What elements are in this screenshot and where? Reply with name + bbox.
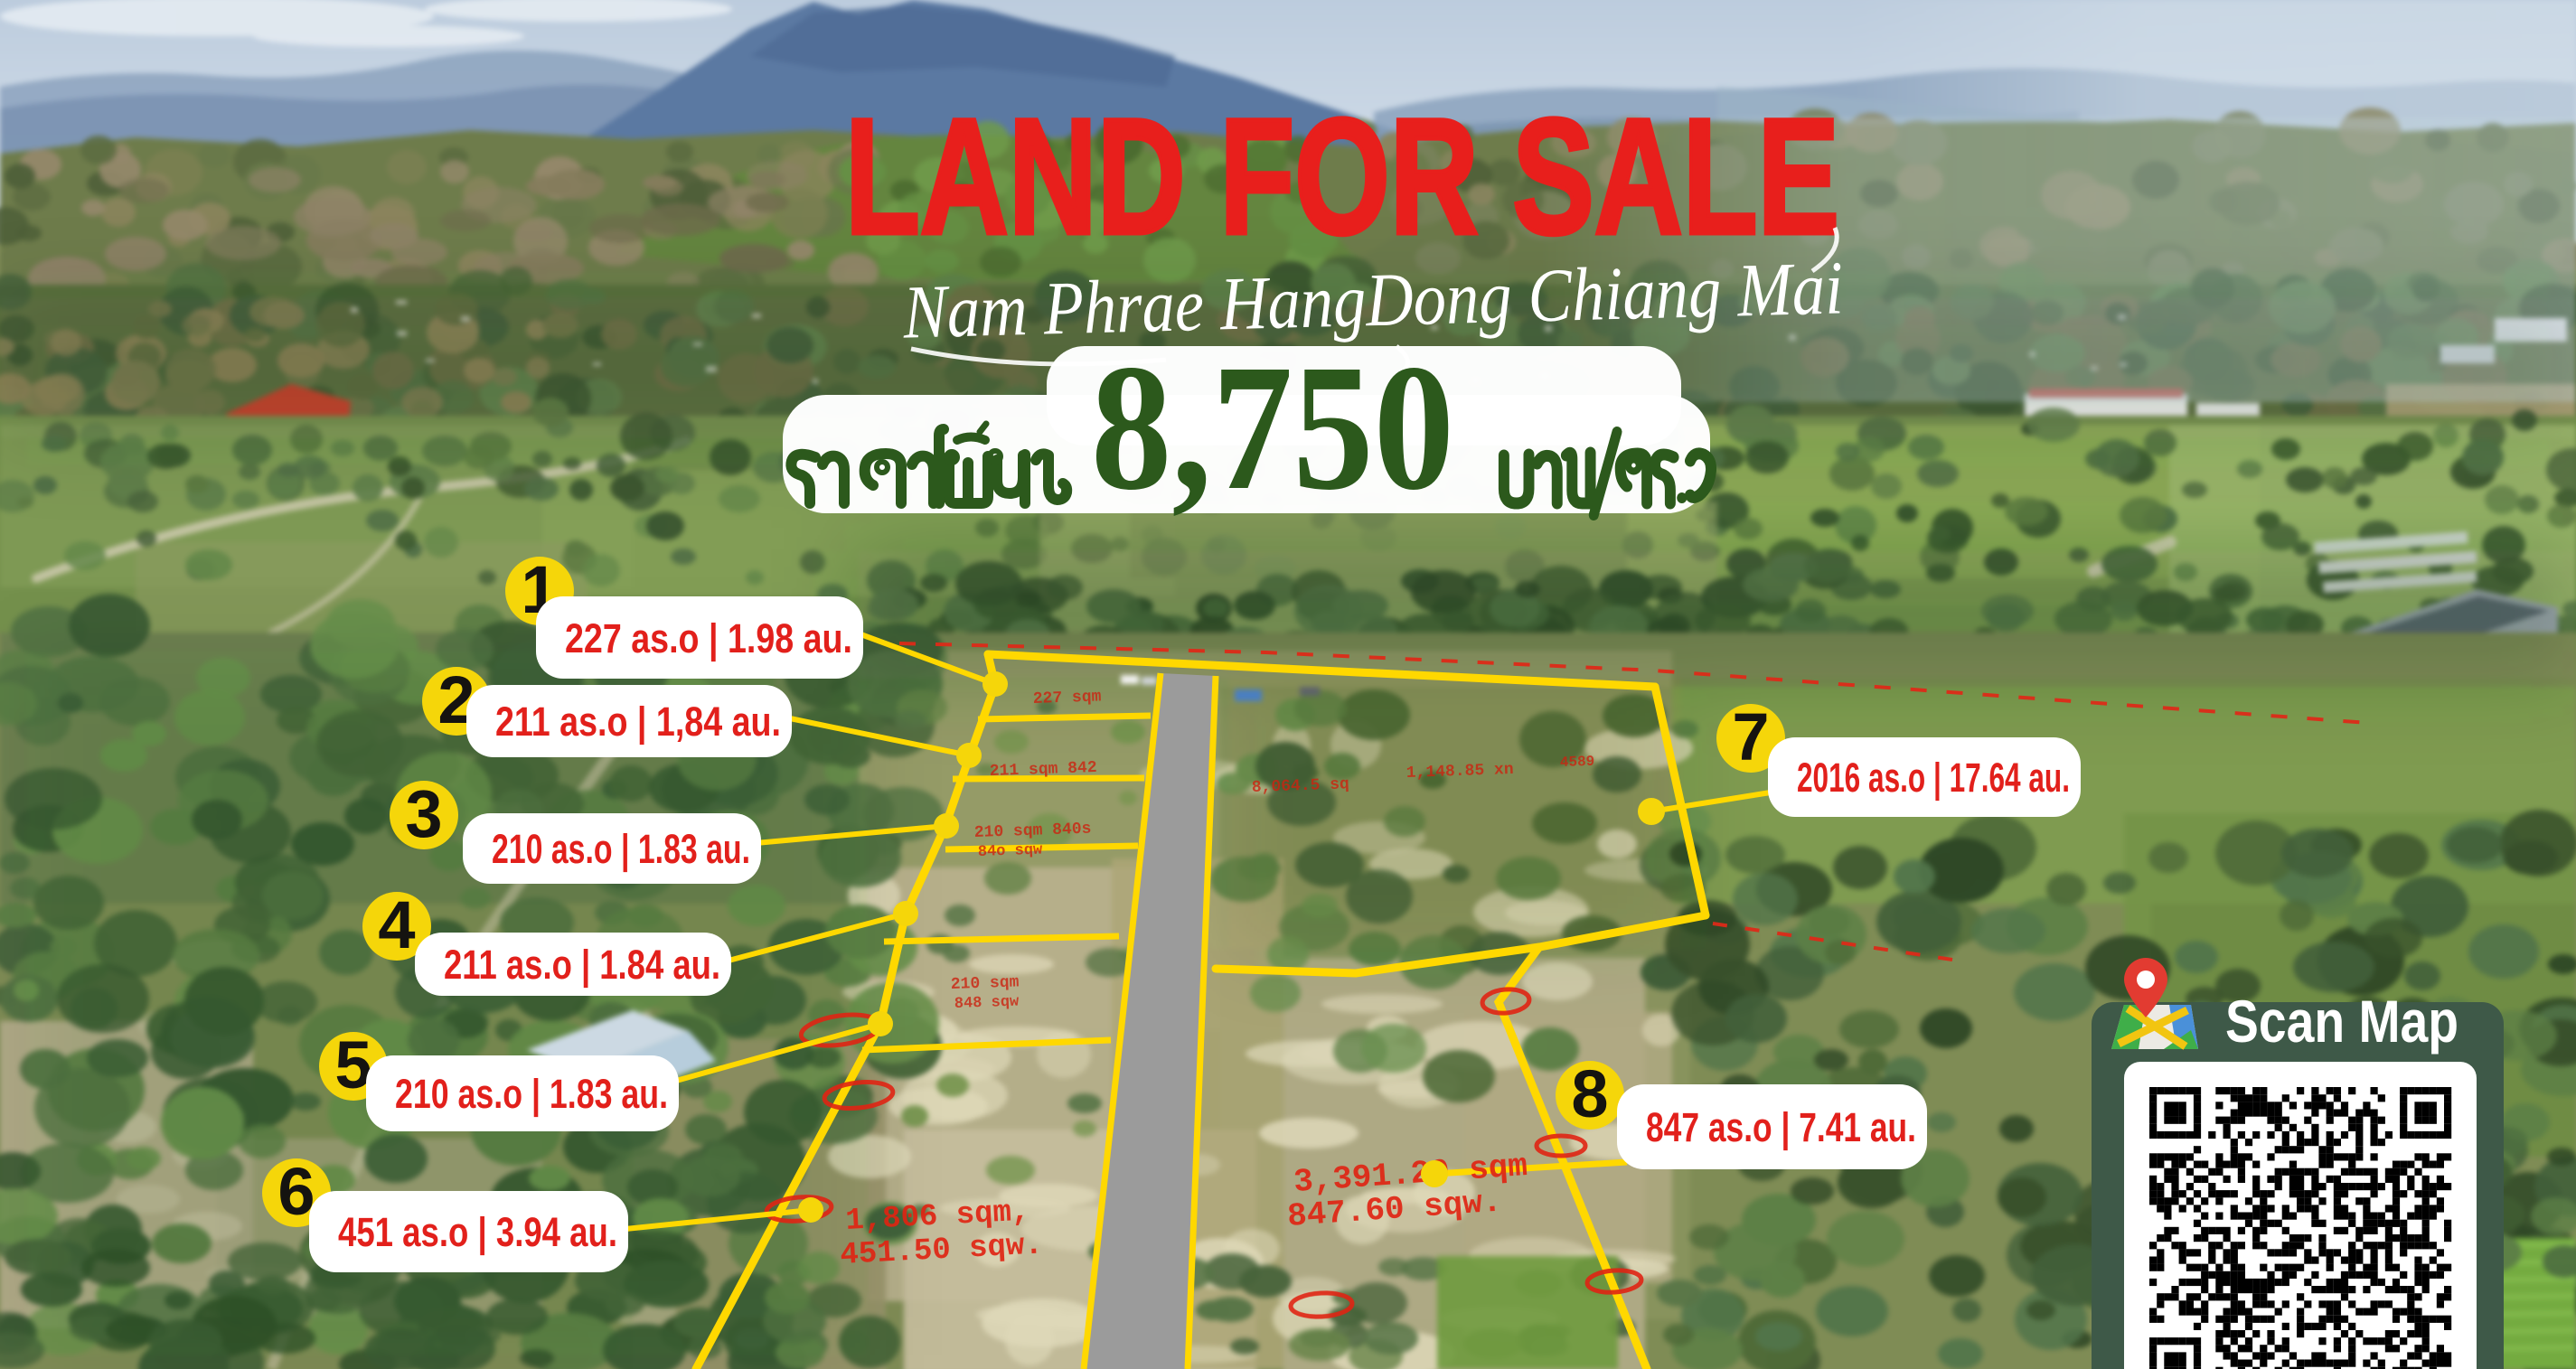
svg-text:3: 3 [405,776,442,851]
svg-text:210 sqm: 210 sqm [951,973,1020,994]
svg-text:211 sqm 842: 211 sqm 842 [990,759,1097,781]
svg-text:1,148.85 xn: 1,148.85 xn [1406,761,1514,783]
svg-text:7: 7 [1732,699,1769,774]
svg-text:LAND FOR SALE: LAND FOR SALE [845,84,1839,268]
svg-text:211 as.o | 1,84 au.: 211 as.o | 1,84 au. [495,699,781,745]
svg-text:848 sqw: 848 sqw [954,993,1020,1013]
svg-text:847 as.o | 7.41 au.: 847 as.o | 7.41 au. [1646,1104,1916,1151]
svg-text:Scan Map: Scan Map [2225,988,2458,1055]
svg-text:227 as.o | 1.98 au.: 227 as.o | 1.98 au. [565,615,852,662]
svg-text:8,750: 8,750 [1091,328,1454,528]
svg-text:84o sqw: 84o sqw [978,841,1044,861]
svg-text:4: 4 [378,887,415,962]
svg-text:451 as.o | 3.94 au.: 451 as.o | 3.94 au. [338,1209,617,1256]
svg-text:210 as.o | 1.83 au.: 210 as.o | 1.83 au. [492,826,750,873]
svg-text:2016 as.o | 17.64 au.: 2016 as.o | 17.64 au. [1797,755,2070,802]
svg-text:8,064.5 sq: 8,064.5 sq [1252,775,1350,797]
svg-text:210 as.o | 1.83 au.: 210 as.o | 1.83 au. [395,1071,668,1118]
svg-text:227 sqm: 227 sqm [1033,688,1102,708]
svg-text:4589: 4589 [1560,754,1595,771]
svg-text:211 as.o | 1.84 au.: 211 as.o | 1.84 au. [444,942,720,989]
svg-text:8: 8 [1571,1056,1608,1131]
